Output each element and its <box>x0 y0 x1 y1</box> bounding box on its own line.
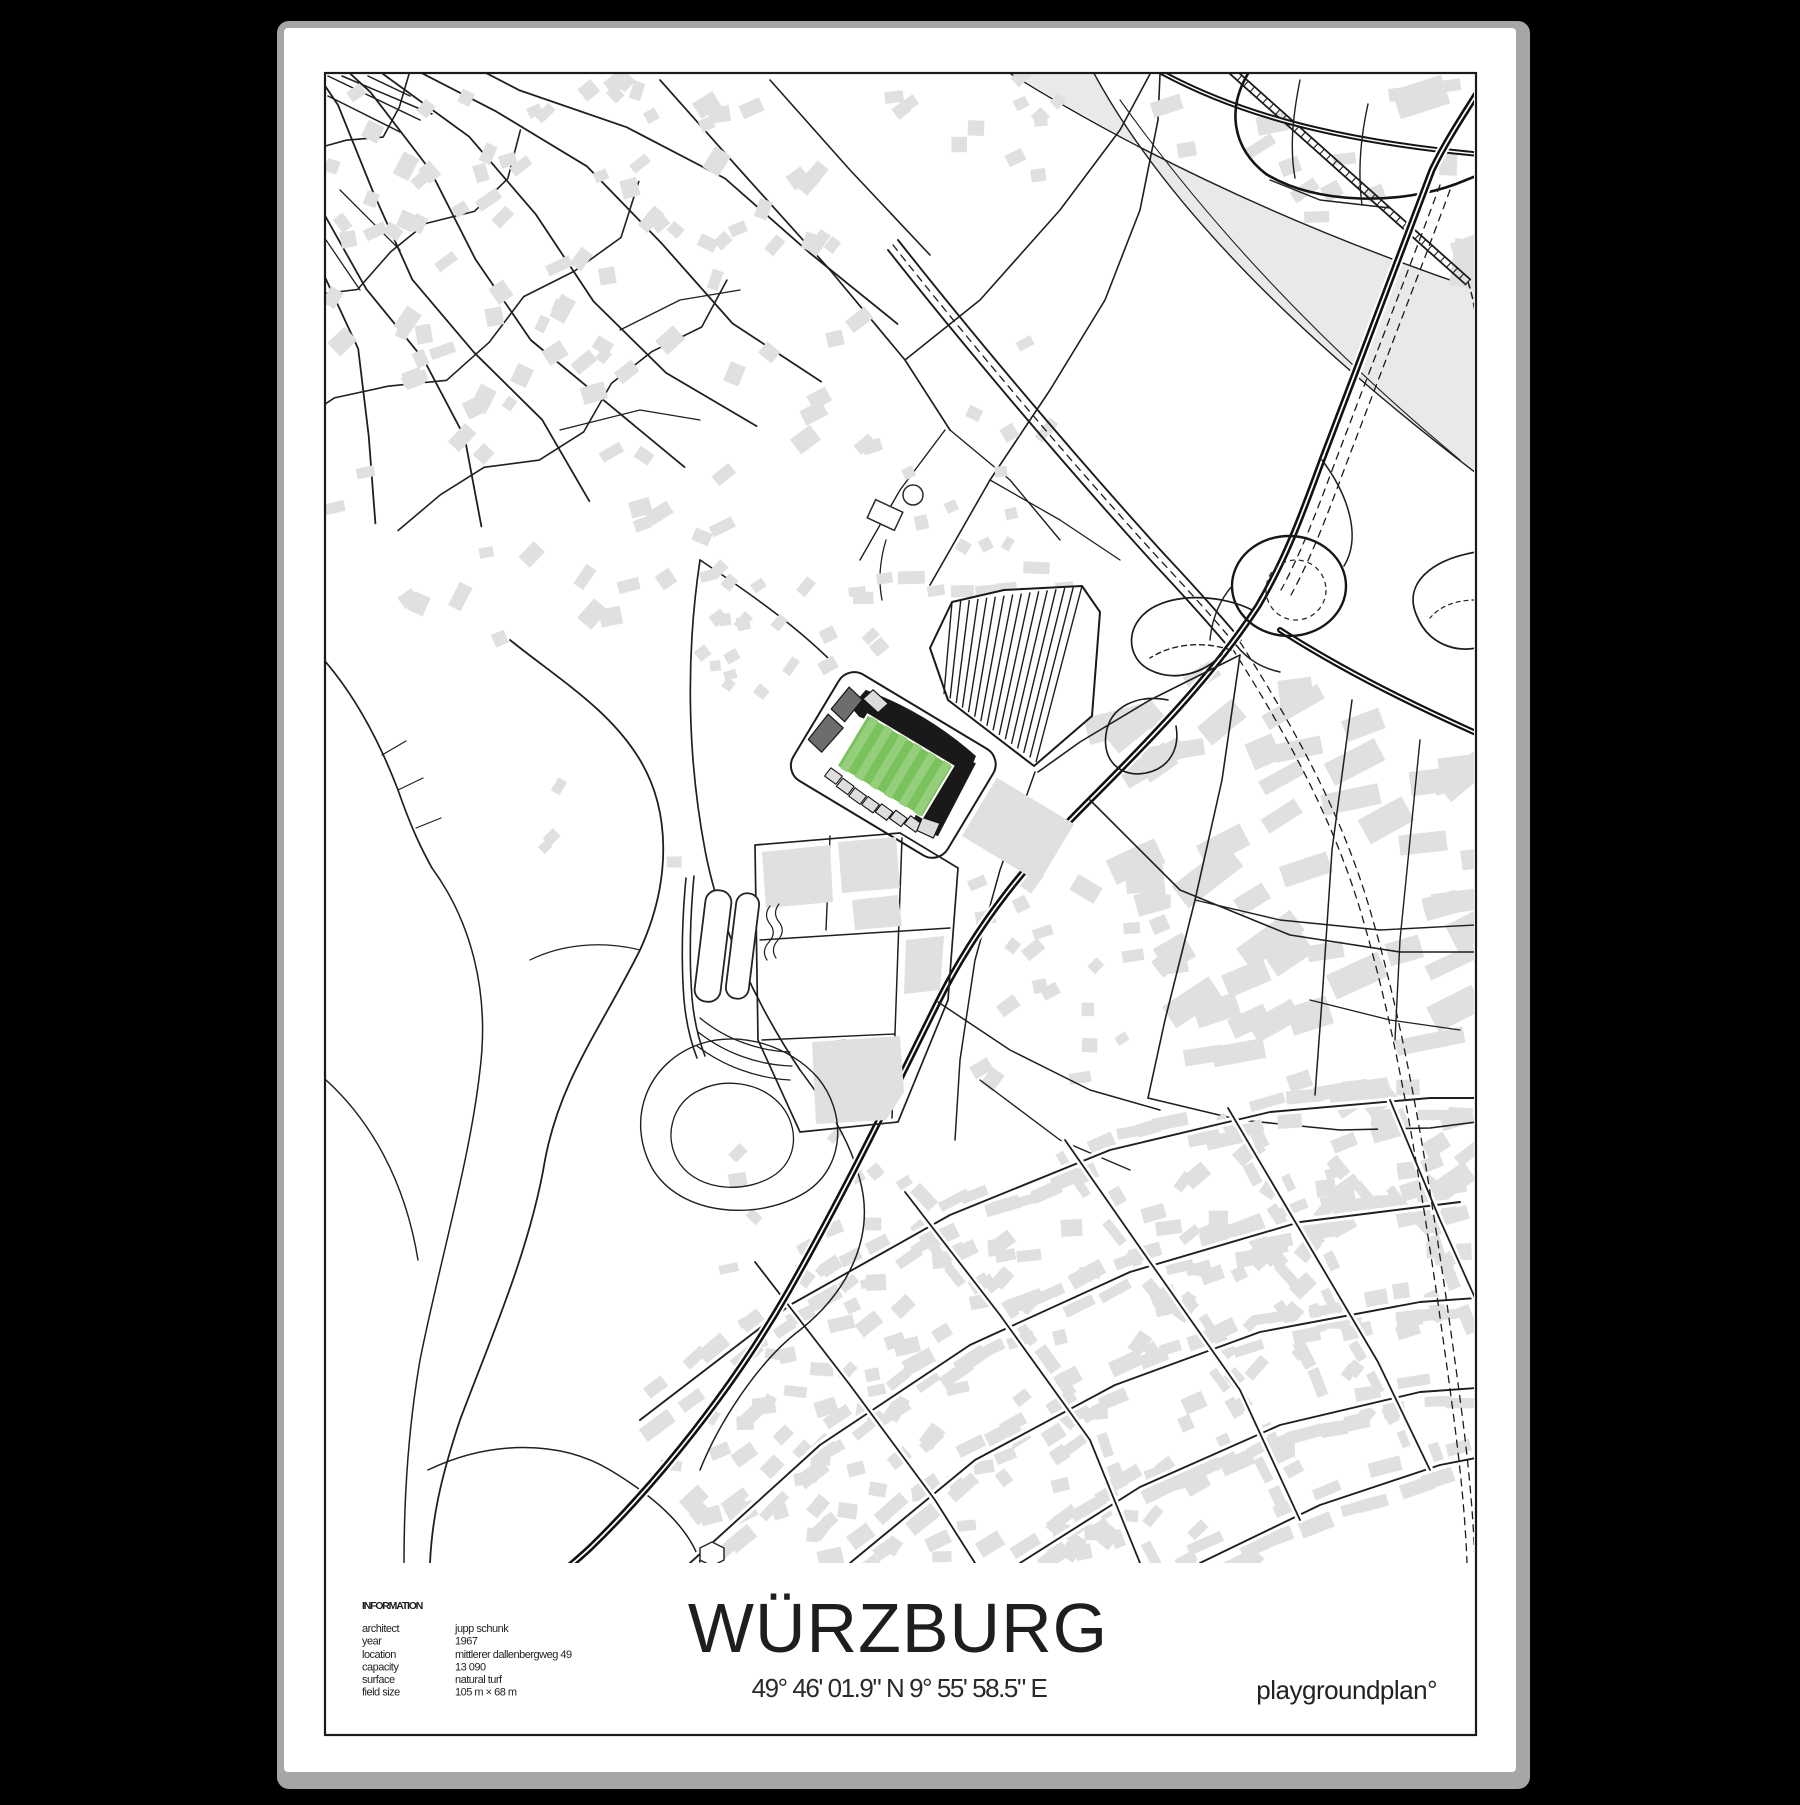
svg-text:mittlerer dallenbergweg 49: mittlerer dallenbergweg 49 <box>455 1649 572 1661</box>
svg-text:13 090: 13 090 <box>455 1661 486 1673</box>
svg-text:location: location <box>362 1649 396 1661</box>
svg-text:surface: surface <box>362 1674 395 1686</box>
svg-text:playgroundplan°: playgroundplan° <box>1256 1675 1437 1705</box>
svg-text:jupp schunk: jupp schunk <box>454 1623 509 1635</box>
svg-text:INFORMATION: INFORMATION <box>362 1600 423 1612</box>
svg-text:architect: architect <box>362 1623 400 1635</box>
svg-text:capacity: capacity <box>362 1661 399 1673</box>
svg-text:year: year <box>362 1636 382 1648</box>
svg-text:105 m × 68 m: 105 m × 68 m <box>455 1686 517 1698</box>
svg-text:WÜRZBURG: WÜRZBURG <box>688 1589 1108 1667</box>
svg-text:natural turf: natural turf <box>455 1674 503 1686</box>
svg-text:49° 46' 01.9" N 9° 55' 58.5" E: 49° 46' 01.9" N 9° 55' 58.5" E <box>752 1673 1048 1703</box>
svg-text:1967: 1967 <box>455 1636 478 1648</box>
svg-text:field size: field size <box>362 1686 400 1698</box>
